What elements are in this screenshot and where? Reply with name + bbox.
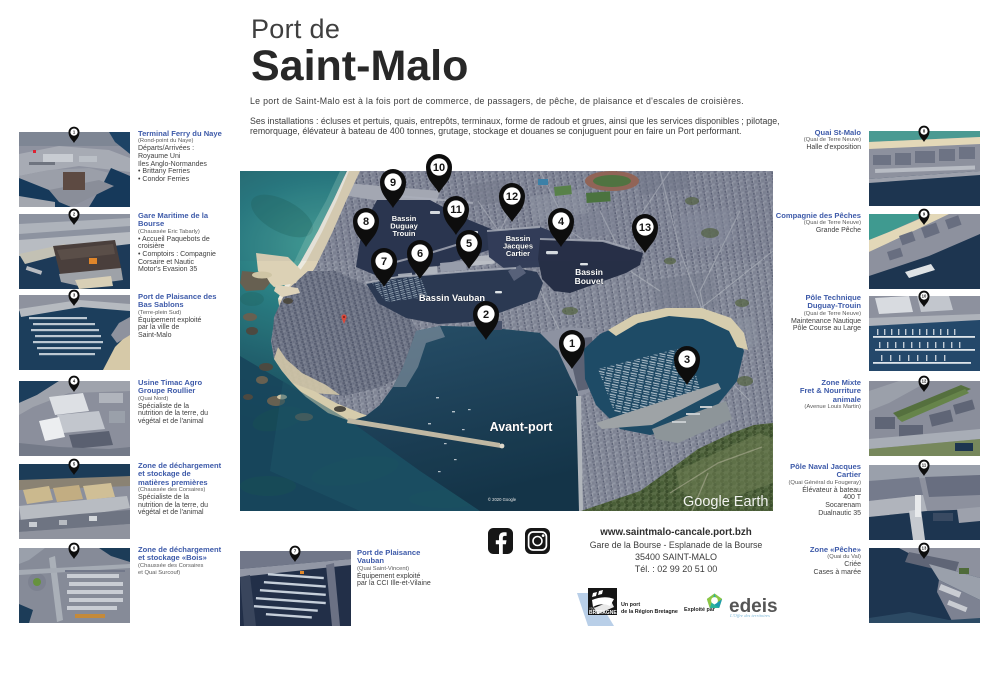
svg-text:9: 9 [390, 177, 396, 189]
svg-text:6: 6 [417, 248, 423, 260]
svg-text:11: 11 [450, 204, 462, 216]
svg-text:2: 2 [483, 309, 489, 321]
svg-text:L'Offre des territoires: L'Offre des territoires [729, 613, 770, 618]
svg-text:11: 11 [922, 463, 927, 468]
svg-text:4: 4 [558, 216, 565, 228]
svg-text:8: 8 [363, 216, 369, 228]
svg-text:1: 1 [569, 338, 575, 350]
svg-text:3: 3 [684, 354, 690, 366]
svg-text:© 2020 Google: © 2020 Google [488, 497, 517, 502]
svg-text:Trouin: Trouin [393, 229, 416, 238]
svg-text:Bouvet: Bouvet [575, 276, 604, 286]
svg-text:Avant-port: Avant-port [490, 420, 554, 434]
svg-text:12: 12 [922, 379, 927, 384]
svg-text:de la Région Bretagne: de la Région Bretagne [621, 609, 678, 615]
svg-text:12: 12 [506, 191, 518, 203]
svg-text:7: 7 [381, 256, 387, 268]
svg-text:13: 13 [922, 546, 927, 551]
svg-text:5: 5 [466, 238, 472, 250]
svg-text:BRETAGNE: BRETAGNE [589, 610, 617, 616]
svg-text:Un port: Un port [621, 602, 640, 608]
svg-text:10: 10 [922, 294, 927, 299]
svg-text:Cartier: Cartier [506, 249, 530, 258]
svg-text:13: 13 [639, 222, 651, 234]
svg-text:10: 10 [433, 162, 445, 174]
svg-text:Bassin Vauban: Bassin Vauban [419, 293, 485, 303]
